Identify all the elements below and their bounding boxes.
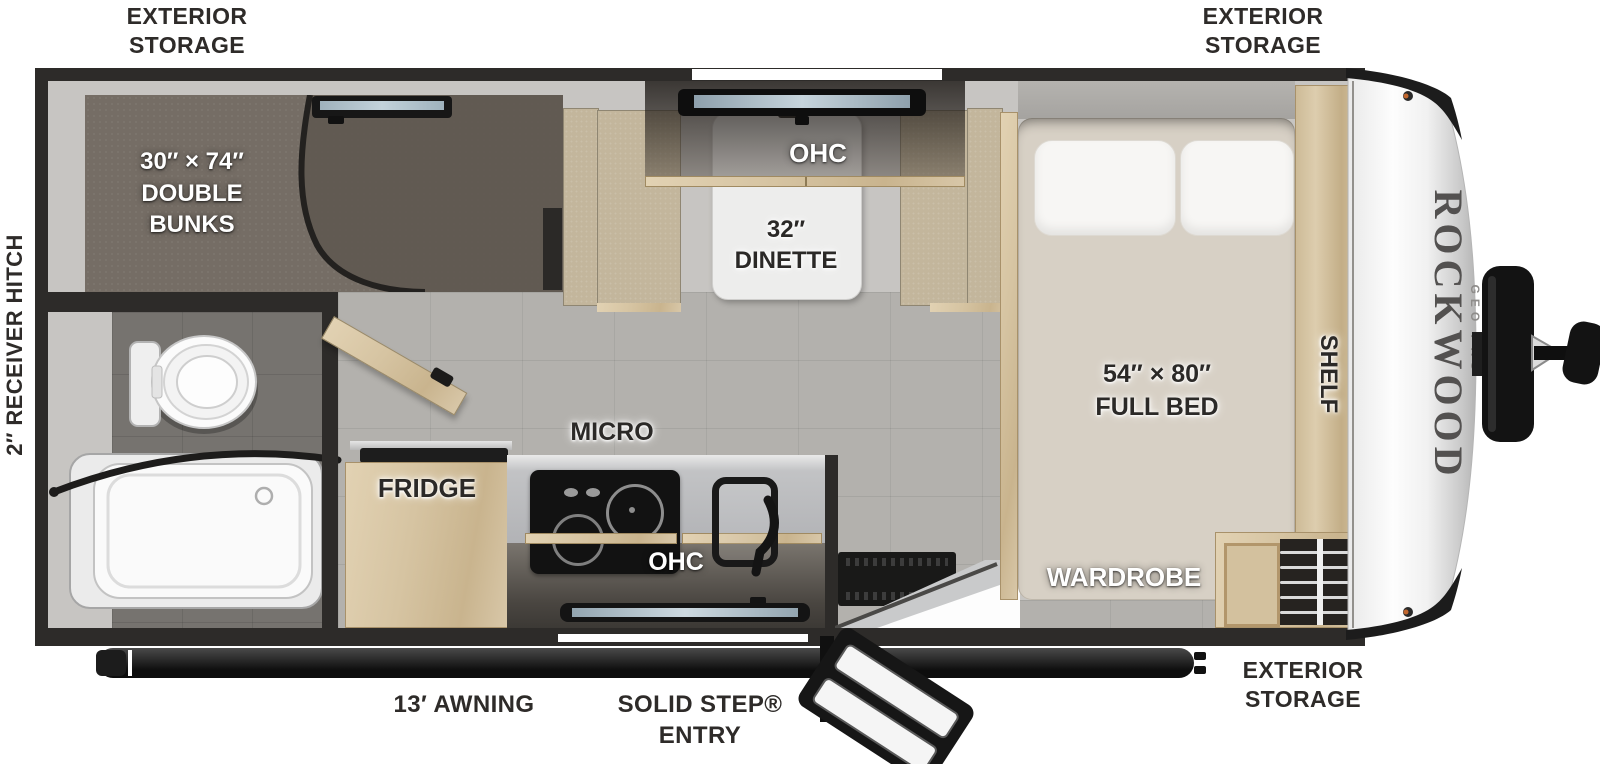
faucet (728, 490, 788, 585)
dinette-word: DINETTE (706, 245, 866, 276)
kitchen-window (560, 603, 810, 622)
tv-screen (694, 95, 910, 108)
hitch (1462, 250, 1600, 460)
bed-type: FULL BED (1037, 391, 1277, 424)
bed-side-rail (1000, 112, 1018, 600)
shower-rod (44, 430, 344, 506)
label-line: EXTERIOR (1138, 2, 1388, 31)
tv (678, 89, 926, 116)
entry-label-line1: SOLID STEP® (575, 690, 825, 721)
bunk-window-glass (320, 101, 444, 110)
wardrobe-label: WARDROBE (1024, 562, 1224, 593)
kitchen-window-latch (750, 597, 766, 605)
bunks-label: 30″ × 74″ DOUBLE BUNKS (87, 146, 297, 241)
bed-size: 54″ × 80″ (1037, 358, 1277, 391)
exterior-storage-label-top-right: EXTERIOR STORAGE (1138, 2, 1388, 61)
bench-left-base (597, 303, 681, 312)
bed-head-wall-band (1018, 81, 1295, 119)
bench-right-base (930, 303, 1010, 312)
entry-steps (790, 615, 1060, 764)
label-line: STORAGE (1178, 685, 1428, 714)
bunk-bath-wall (35, 292, 338, 312)
exterior-storage-label-bottom-right: EXTERIOR STORAGE (1178, 656, 1428, 715)
dinette-size: 32″ (706, 214, 866, 245)
wall-left (35, 68, 48, 646)
dinette-bench-right-back (967, 108, 1003, 304)
bunks-line3: BUNKS (87, 209, 297, 241)
dinette-ohc-rail-split (805, 177, 807, 186)
kitchen-ohc-rail-left (525, 533, 677, 544)
bunk-window (312, 96, 452, 118)
fridge-top (360, 448, 508, 463)
label-line: EXTERIOR (62, 2, 312, 31)
micro-label: MICRO (532, 418, 692, 447)
door-side-window (558, 634, 808, 642)
awning-bracket-left (96, 650, 126, 676)
entry-label: SOLID STEP® ENTRY (575, 690, 825, 751)
bed-pillow-left (1034, 140, 1176, 236)
receiver-hitch-label: 2″ RECEIVER HITCH (1, 180, 29, 510)
exterior-storage-label-top-left: EXTERIOR STORAGE (62, 2, 312, 61)
bunks-size: 30″ × 74″ (87, 146, 297, 178)
awning-bracket-left-gap (128, 650, 132, 676)
label-line: STORAGE (62, 31, 312, 60)
awning-label: 13′ AWNING (339, 690, 589, 721)
dinette-bench-left-back (563, 108, 599, 306)
cooktop-knob (586, 488, 600, 497)
dinette-window (692, 69, 942, 80)
dinette-ohc-rail (645, 176, 965, 187)
bunk-window-latch (328, 116, 344, 124)
cooktop-knob (564, 488, 578, 497)
bed-label: 54″ × 80″ FULL BED (1037, 358, 1277, 424)
wire-cabinet-drawer (1224, 543, 1280, 627)
dinette-label: 32″ DINETTE (706, 214, 866, 276)
tv-mount (795, 116, 809, 125)
bunks-line2: DOUBLE (87, 178, 297, 210)
floorplan-canvas: 30″ × 74″ DOUBLE BUNKS (0, 0, 1600, 764)
dinette-ohc-label: OHC (768, 138, 868, 169)
toilet (128, 330, 263, 440)
entry-label-line2: ENTRY (575, 721, 825, 752)
kitchen-window-glass (572, 608, 798, 617)
bunk-ladder (543, 208, 562, 290)
label-line: STORAGE (1138, 31, 1388, 60)
label-line: EXTERIOR (1178, 656, 1428, 685)
kitchen-ohc-label: OHC (626, 548, 726, 577)
bed-pillow-right (1180, 140, 1294, 236)
fridge-label: FRIDGE (347, 473, 507, 504)
